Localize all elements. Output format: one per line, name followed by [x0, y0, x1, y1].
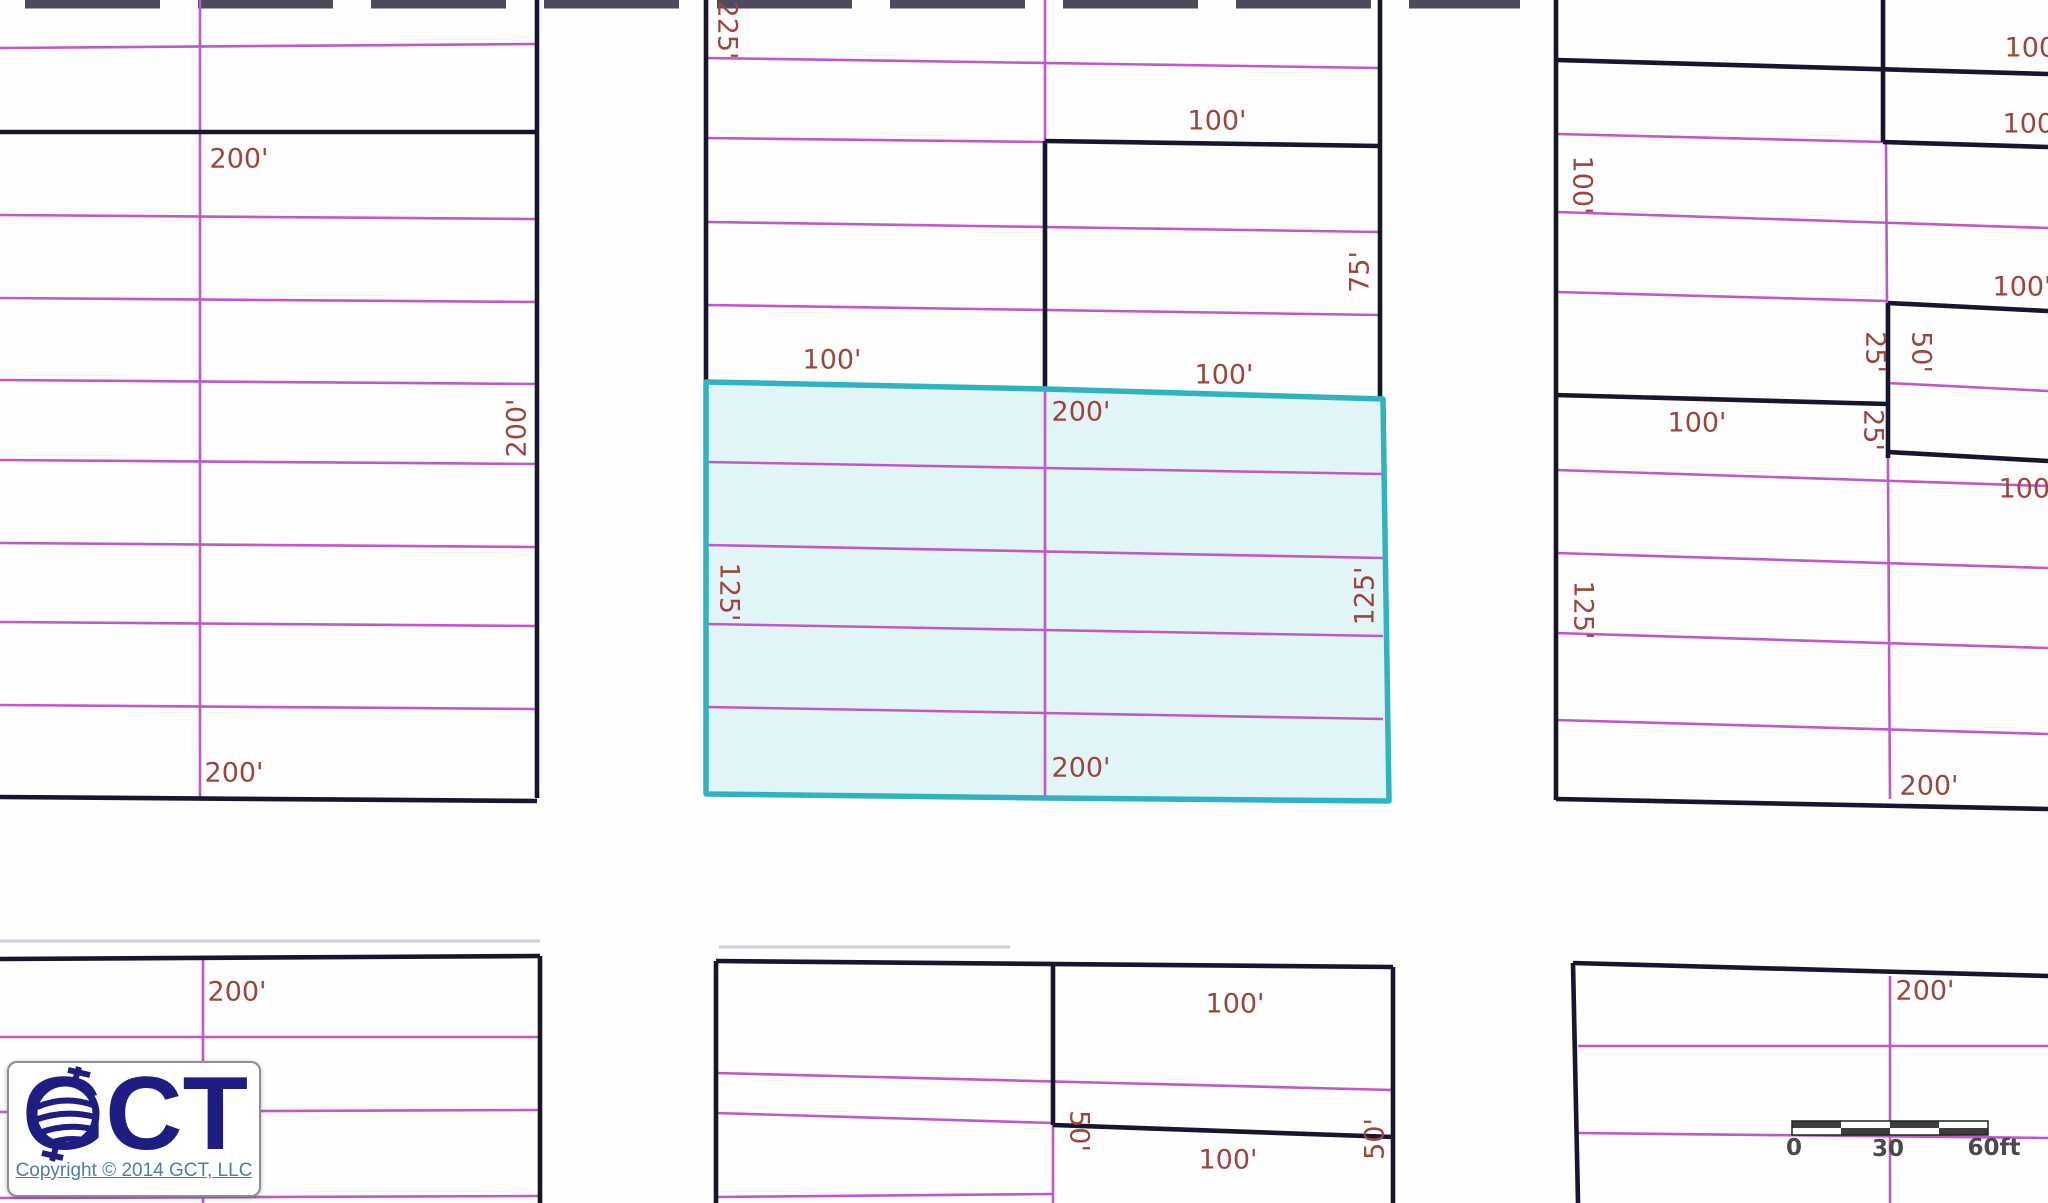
parcel-map[interactable]: 200'200'200'225'100'75'100'100'200'125'1… — [0, 0, 2048, 1203]
dimension-label: 200' — [502, 399, 533, 458]
dimension-label: 200' — [1052, 397, 1111, 428]
dimension-label: 25' — [1860, 331, 1891, 373]
scale-bar-segment — [1939, 1128, 1988, 1135]
dimension-label: 100' — [1999, 474, 2048, 505]
dimension-label: 200' — [1052, 753, 1111, 784]
scale-bar-label: 30 — [1872, 1136, 1904, 1162]
dimension-label: 100' — [1567, 156, 1598, 215]
dimension-label: 75' — [1345, 251, 1376, 293]
dimension-label: 225' — [712, 1, 743, 60]
copyright-link[interactable]: Copyright © 2014 GCT, LLC — [16, 1161, 253, 1180]
dimension-label: 50' — [1064, 1110, 1095, 1152]
scale-bar-segment — [1792, 1121, 1841, 1128]
dimension-label: 100' — [1199, 1145, 1258, 1176]
parcel-map-canvas[interactable]: 200'200'200'225'100'75'100'100'200'125'1… — [0, 0, 2048, 1203]
scale-bar-segment — [1792, 1128, 1841, 1135]
dimension-label: 100' — [803, 345, 862, 376]
dimension-label: 25' — [1858, 409, 1889, 451]
dimension-label: 125' — [714, 563, 745, 622]
dimension-label: 100' — [1206, 989, 1265, 1020]
dimension-label: 100' — [1993, 272, 2048, 303]
scale-bar-segment — [1841, 1121, 1890, 1128]
dimension-label: 200' — [210, 144, 269, 175]
dimension-label: 200' — [1900, 771, 1959, 802]
dimension-label: 100' — [2003, 109, 2048, 140]
highlighted-parcel[interactable] — [706, 382, 1389, 801]
scale-bar-label: 60ft — [1967, 1135, 2020, 1161]
scale-bar-segment — [1841, 1128, 1890, 1135]
dimension-label: 100' — [1668, 408, 1727, 439]
globe-icon-sphere — [34, 1083, 96, 1145]
dimension-label: 100' — [1195, 360, 1254, 391]
gct-logo: GCT Copyright © 2014 GCT, LLC — [7, 1061, 261, 1197]
dimension-label: 200' — [205, 758, 264, 789]
scale-bar-segment — [1890, 1128, 1939, 1135]
dimension-label: 50' — [1360, 1118, 1391, 1160]
dimension-label: 200' — [1896, 976, 1955, 1007]
dimension-label: 50' — [1906, 331, 1937, 373]
dimension-label: 125' — [1568, 581, 1599, 640]
scale-bar-segment — [1890, 1121, 1939, 1128]
block-boundary-line — [0, 956, 540, 959]
scale-bar-label: 0 — [1786, 1135, 1802, 1161]
dimension-label: 100' — [1188, 106, 1247, 137]
dimension-label: 125' — [1350, 567, 1381, 626]
scale-bar-segment — [1939, 1121, 1988, 1128]
gct-logo-art: GCT — [16, 1065, 252, 1165]
dimension-label: 100' — [2005, 33, 2048, 64]
dimension-label: 200' — [208, 977, 267, 1008]
